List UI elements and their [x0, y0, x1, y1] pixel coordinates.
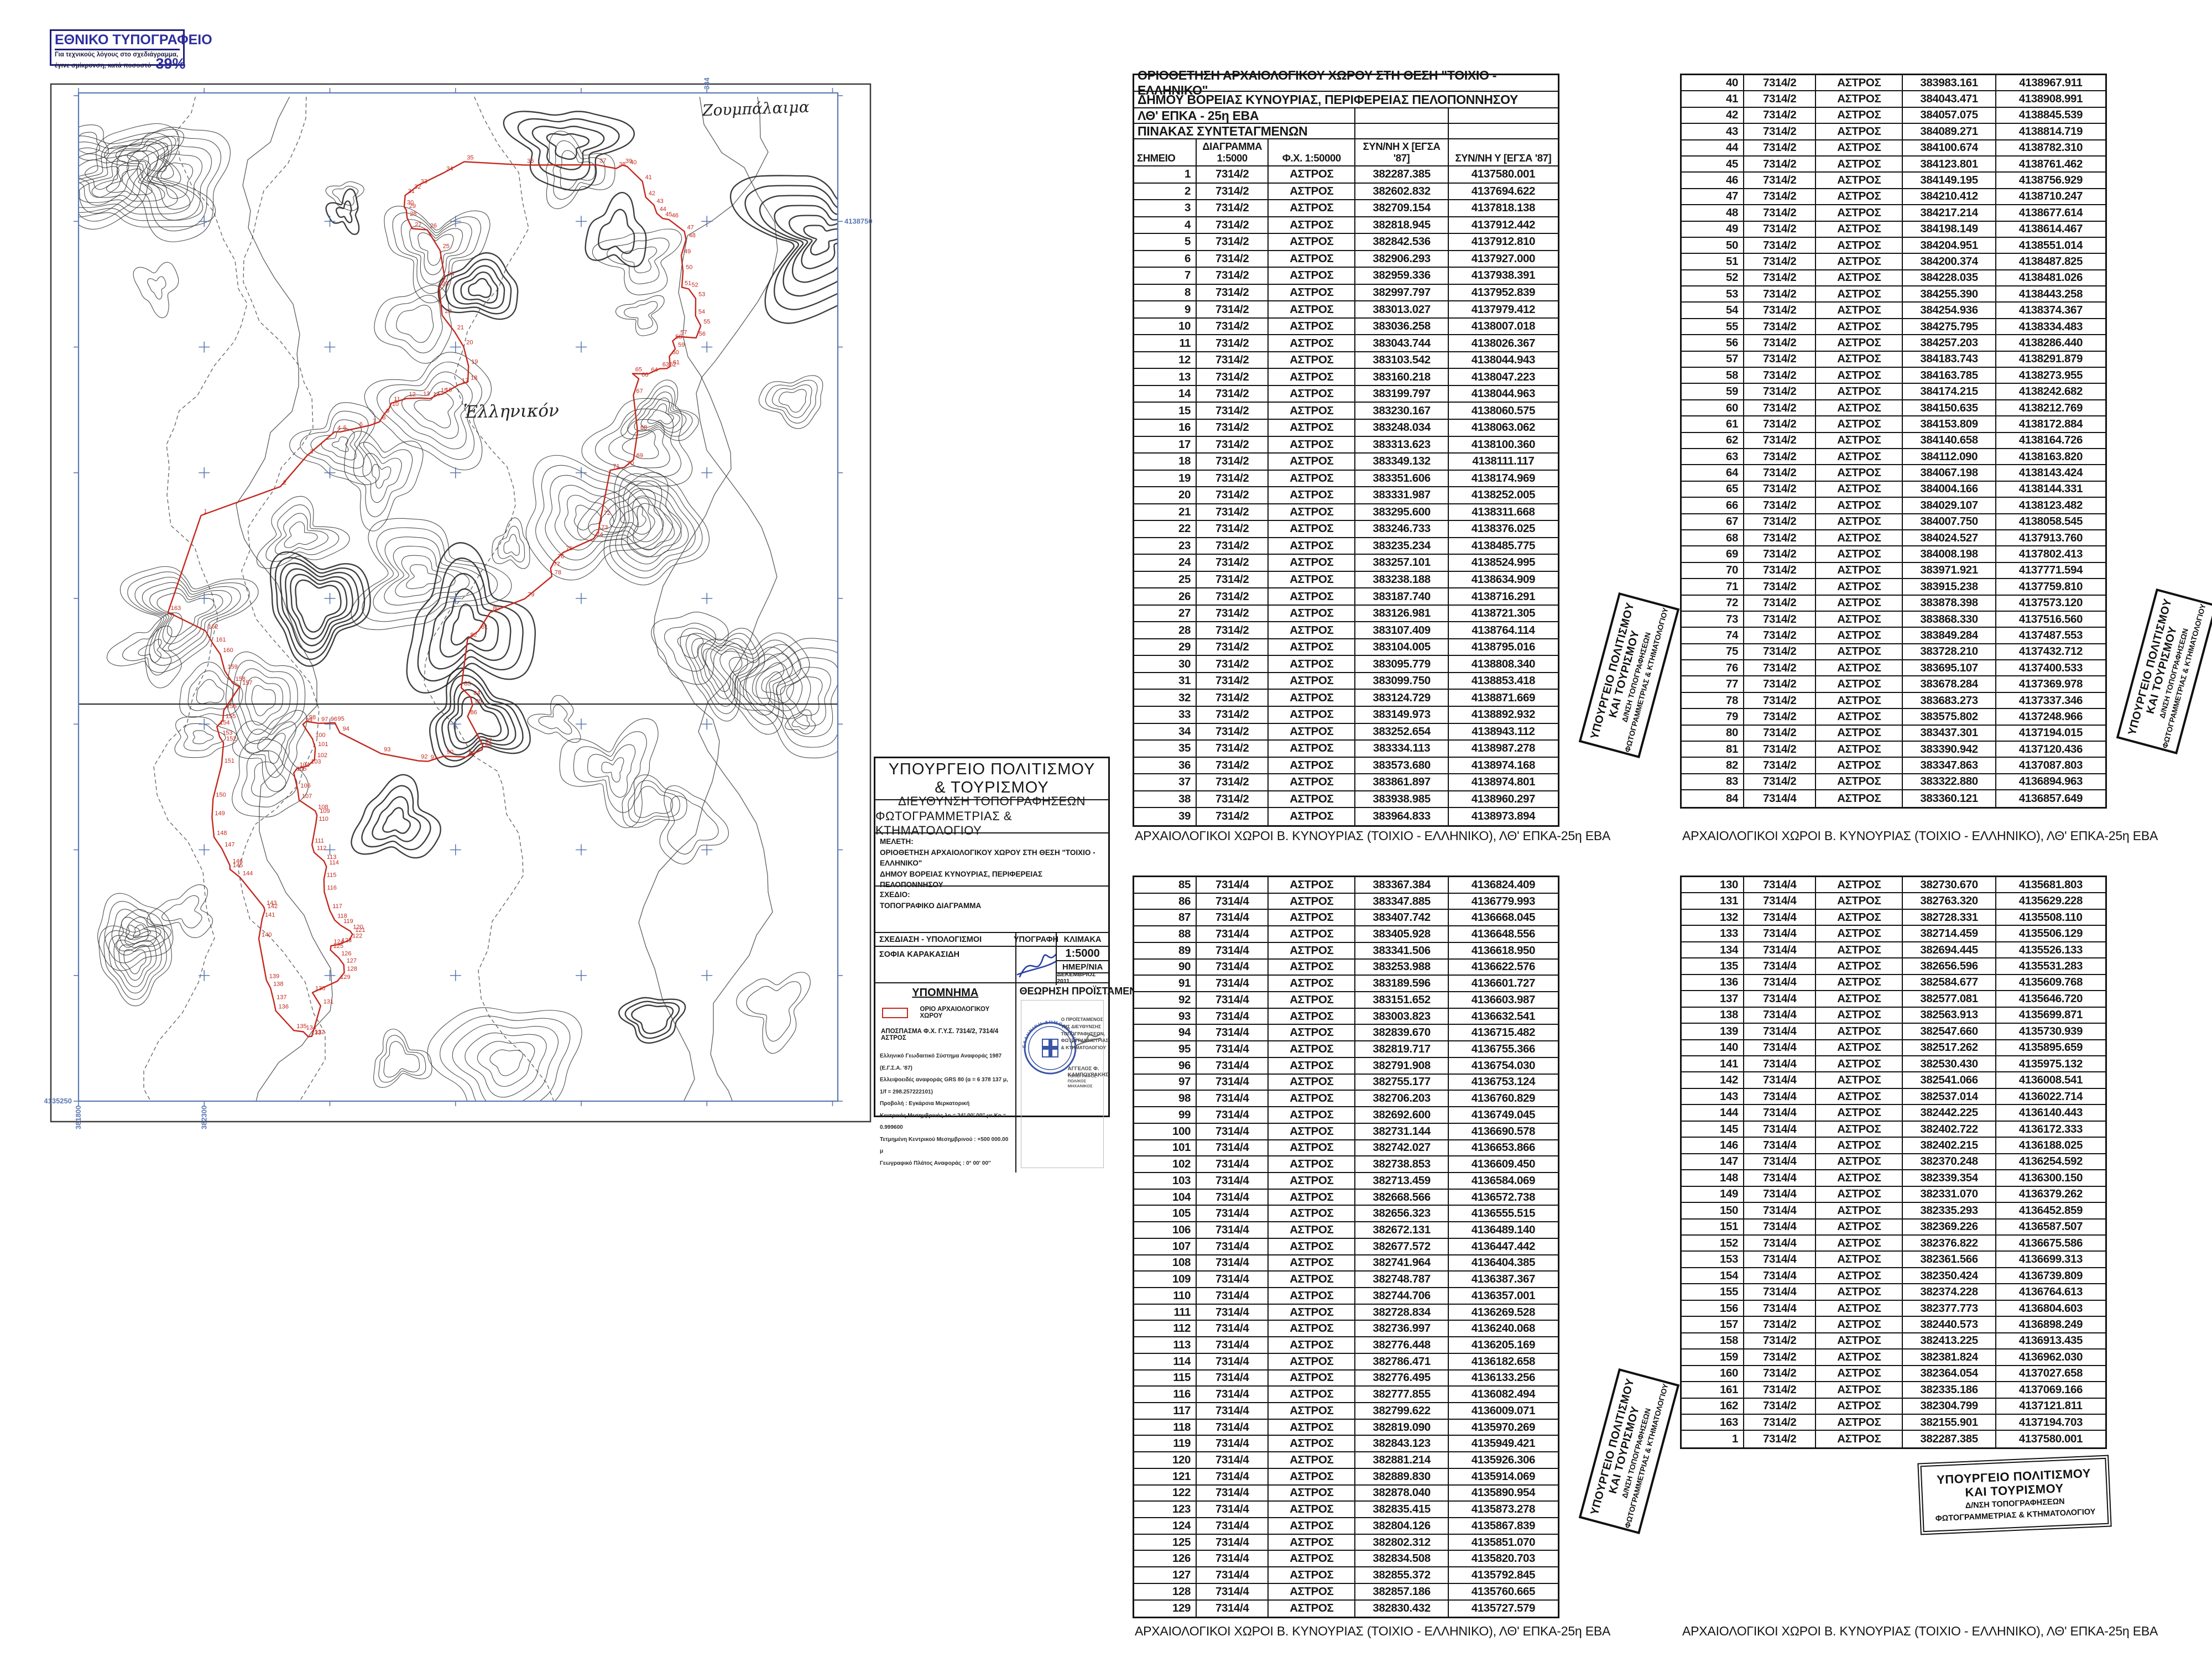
table-row: 1157314/4ΑΣΤΡΟΣ382776.4954136133.256 [1134, 1371, 1558, 1387]
table-cell: 4138814.719 [1995, 124, 2105, 139]
table-cell: 7314/4 [1196, 1091, 1267, 1106]
boundary-point-label: 110 [319, 816, 328, 822]
table-cell: 64 [1682, 465, 1743, 480]
table-cell: 4138761.462 [1995, 157, 2105, 171]
boundary-point-label: 25 [443, 243, 450, 250]
table-row: 987314/4ΑΣΤΡΟΣ382706.2034136760.829 [1134, 1091, 1558, 1107]
table-cell: 383849.284 [1902, 628, 1995, 643]
table-cell: ΑΣΤΡΟΣ [1267, 572, 1354, 588]
table-row: 1347314/4ΑΣΤΡΟΣ382694.4454135526.133 [1682, 942, 2105, 958]
table-cell: 7314/4 [1196, 1502, 1267, 1517]
table-row: 647314/2ΑΣΤΡΟΣ384067.1984138143.424 [1682, 465, 2105, 481]
table-cell: 4138892.932 [1448, 707, 1558, 723]
table-cell: 4136622.576 [1448, 960, 1558, 975]
study-line1: ΟΡΙΟΘΕΤΗΣΗ ΑΡΧΑΙΟΛΟΓΙΚΟΥ ΧΩΡΟΥ ΣΤΗ ΘΕΣΗ … [880, 847, 1104, 869]
table-cell: 7314/4 [1743, 1203, 1815, 1218]
table-cell: 383971.921 [1902, 563, 1995, 578]
boundary-point-label: 99 [306, 717, 312, 724]
table-cell: 26 [1134, 588, 1196, 605]
table-row: 1497314/4ΑΣΤΡΟΣ382331.0704136379.262 [1682, 1187, 2105, 1203]
coords-table-body-1: 17314/2ΑΣΤΡΟΣ382287.3854137580.00127314/… [1134, 166, 1558, 825]
table-cell: ΑΣΤΡΟΣ [1815, 335, 1902, 350]
table-row: 1037314/4ΑΣΤΡΟΣ382713.4594136584.069 [1134, 1173, 1558, 1190]
table-cell: 384004.166 [1902, 482, 1995, 497]
table-cell: 383230.167 [1354, 403, 1448, 419]
table-cell: 382748.787 [1354, 1272, 1448, 1287]
table-cell: ΑΣΤΡΟΣ [1815, 1138, 1902, 1153]
table-title-2: ΔΗΜΟΥ ΒΟΡΕΙΑΣ ΚΥΝΟΥΡΙΑΣ, ΠΕΡΙΦΕΡΕΙΑΣ ΠΕΛ… [1134, 92, 1558, 108]
table-row: 377314/2ΑΣΤΡΟΣ383861.8974138974.801 [1134, 774, 1558, 791]
table-cell: 85 [1134, 877, 1196, 893]
boundary-point-label: 162 [208, 623, 218, 630]
table-cell: 7314/2 [1743, 758, 1815, 773]
table-cell: 382709.154 [1354, 200, 1448, 216]
boundary-point-label: 9 [386, 408, 389, 415]
table-cell: 4138273.955 [1995, 368, 2105, 383]
table-row: 1167314/4ΑΣΤΡΟΣ382777.8554136082.494 [1134, 1387, 1558, 1403]
table-cell: ΑΣΤΡΟΣ [1267, 301, 1354, 317]
table-cell: 7314/2 [1743, 465, 1815, 480]
table-cell: ΑΣΤΡΟΣ [1815, 644, 1902, 659]
table-cell: 7314/2 [1196, 184, 1267, 200]
table-cell: 7314/4 [1196, 1058, 1267, 1074]
table-cell: ΑΣΤΡΟΣ [1267, 1567, 1354, 1583]
table-cell: 4138634.909 [1448, 572, 1558, 588]
table-cell: ΑΣΤΡΟΣ [1815, 1220, 1902, 1234]
table-row: 1027314/4ΑΣΤΡΟΣ382738.8534136609.450 [1134, 1156, 1558, 1173]
table-cell: 7314/2 [1743, 449, 1815, 464]
title-block-directorate-line1: ΔΙΕΥΘΥΝΣΗ ΤΟΠΟΓΡΑΦΗΣΕΩΝ [898, 794, 1086, 809]
table-cell: 382402.215 [1902, 1138, 1995, 1153]
boundary-point-label: 70 [627, 460, 634, 467]
table-cell: 7314/2 [1743, 433, 1815, 448]
boundary-point-label: 96 [331, 716, 337, 722]
empty-cell [1448, 108, 1558, 123]
table-cell: ΑΣΤΡΟΣ [1815, 530, 1902, 545]
geodetic-note-line: Γεωγραφικό Πλάτος Αναφοράς : 0° 00′ 00″ [880, 1158, 1011, 1170]
table-cell: 7314/2 [1196, 774, 1267, 790]
table-cell: 4136555.515 [1448, 1206, 1558, 1221]
table-cell: ΑΣΤΡΟΣ [1267, 285, 1354, 301]
boundary-point-label: 111 [315, 838, 324, 845]
boundary-point-label: 140 [262, 932, 272, 939]
table-cell: 4136572.738 [1448, 1190, 1558, 1205]
table-cell: 4136668.045 [1448, 910, 1558, 925]
table-row: 287314/2ΑΣΤΡΟΣ383107.4094138764.114 [1134, 622, 1558, 639]
table-cell: 93 [1134, 1009, 1196, 1024]
table-cell: 382818.945 [1354, 217, 1448, 233]
table-cell: ΑΣΤΡΟΣ [1267, 894, 1354, 909]
table-cell: 7314/4 [1196, 1584, 1267, 1599]
table-row: 687314/2ΑΣΤΡΟΣ384024.5274137913.760 [1682, 530, 2105, 546]
table-cell: 4135914.069 [1448, 1469, 1558, 1484]
table-cell: 4136404.385 [1448, 1255, 1558, 1271]
boundary-point-label: 139 [269, 973, 279, 979]
table-cell: 110 [1134, 1288, 1196, 1304]
table-cell: 7314/4 [1196, 1255, 1267, 1271]
table-row: 417314/2ΑΣΤΡΟΣ384043.4714138908.991 [1682, 91, 2105, 107]
table-cell: 384153.809 [1902, 416, 1995, 431]
table-row: 357314/2ΑΣΤΡΟΣ383334.1134138987.278 [1134, 741, 1558, 758]
table-cell: ΑΣΤΡΟΣ [1815, 1333, 1902, 1348]
boundary-point-label: 34 [446, 166, 453, 173]
boundary-point-label: 1 [204, 508, 207, 515]
table-cell: 384255.390 [1902, 286, 1995, 301]
table-cell: 57 [1682, 352, 1743, 367]
table-cell: 4138908.991 [1995, 91, 2105, 106]
table-row: 1567314/4ΑΣΤΡΟΣ382377.7734136804.603 [1682, 1301, 2105, 1317]
boundary-point-label: 30 [407, 200, 414, 206]
legend-title: ΥΠΟΜΝΗΜΑ [880, 987, 1011, 999]
table-cell: 7314/4 [1743, 1220, 1815, 1234]
table-cell: 382413.225 [1902, 1333, 1995, 1348]
table-cell: 4138143.424 [1995, 465, 2105, 480]
table-cell: 7314/4 [1196, 1354, 1267, 1369]
table-cell: 4138334.483 [1995, 319, 2105, 334]
boundary-point-label: 41 [645, 174, 652, 181]
table-cell: 7314/4 [1743, 910, 1815, 925]
table-cell: 4138007.018 [1448, 319, 1558, 335]
table-row: 87314/2ΑΣΤΡΟΣ382997.7974137952.839 [1134, 285, 1558, 302]
table-cell: 7314/4 [1196, 1173, 1267, 1189]
boundary-point-label: 100 [315, 732, 325, 738]
table-cell: 68 [1682, 530, 1743, 545]
boundary-point-label: 68 [640, 424, 647, 431]
table-cell: 7314/2 [1196, 639, 1267, 655]
table-cell: 4138172.884 [1995, 416, 2105, 431]
table-cell: 4138943.112 [1448, 724, 1558, 740]
table-cell: 7314/2 [1196, 808, 1267, 825]
table-row: 917314/4ΑΣΤΡΟΣ383189.5964136601.727 [1134, 976, 1558, 992]
table-cell: 382730.670 [1902, 877, 1995, 892]
table-row: 1477314/4ΑΣΤΡΟΣ382370.2484136254.592 [1682, 1154, 2105, 1170]
boundary-point-label: 97 [321, 716, 328, 723]
table-cell: ΑΣΤΡΟΣ [1267, 1222, 1354, 1238]
table-cell: 384112.090 [1902, 449, 1995, 464]
table-cell: 62 [1682, 433, 1743, 448]
table-cell: 49 [1682, 222, 1743, 237]
table-row: 397314/2ΑΣΤΡΟΣ383964.8334138973.894 [1134, 808, 1558, 825]
boundary-point-label: 136 [279, 1004, 289, 1010]
table-cell: ΑΣΤΡΟΣ [1267, 319, 1354, 335]
table-cell: 382547.660 [1902, 1024, 1995, 1039]
table-cell: 382878.040 [1354, 1486, 1448, 1501]
table-cell: 4138677.614 [1995, 205, 2105, 220]
boundary-point-label: 52 [692, 282, 698, 289]
boundary-point-label: 37 [599, 158, 606, 164]
table-row: 1327314/4ΑΣΤΡΟΣ382728.3314135508.110 [1682, 910, 2105, 926]
grid-coordinate-label: 382300 [200, 1106, 208, 1129]
table-cell: 382376.822 [1902, 1236, 1995, 1250]
table-cell: ΑΣΤΡΟΣ [1815, 1122, 1902, 1137]
table-cell: ΑΣΤΡΟΣ [1815, 1236, 1902, 1250]
boundary-point-label: 55 [703, 319, 710, 325]
table-cell: 7314/4 [1743, 1170, 1815, 1185]
table-cell: 4136357.001 [1448, 1288, 1558, 1304]
table-cell: 4138063.062 [1448, 420, 1558, 436]
table-cell: ΑΣΤΡΟΣ [1815, 270, 1902, 285]
table-cell: 4138721.305 [1448, 606, 1558, 622]
table-cell: ΑΣΤΡΟΣ [1815, 498, 1902, 513]
table-cell: 382563.913 [1902, 1008, 1995, 1023]
boundary-point-label: 72 [604, 510, 611, 517]
table-cell: ΑΣΤΡΟΣ [1267, 926, 1354, 942]
table-row: 507314/2ΑΣΤΡΟΣ384204.9514138551.014 [1682, 238, 2105, 254]
table-row: 827314/2ΑΣΤΡΟΣ383347.8634137087.803 [1682, 758, 2105, 774]
table-cell: 27 [1134, 606, 1196, 622]
table-cell: ΑΣΤΡΟΣ [1267, 1173, 1354, 1189]
table-cell: 4137400.533 [1995, 660, 2105, 675]
table-cell: 382728.834 [1354, 1305, 1448, 1320]
boundary-point-label: 54 [698, 309, 705, 315]
table-row: 637314/2ΑΣΤΡΟΣ384112.0904138163.820 [1682, 449, 2105, 465]
table-cell: 383151.652 [1354, 992, 1448, 1008]
boundary-point-label: 14 [433, 392, 440, 398]
boundary-point-label: 82 [471, 632, 477, 639]
table-cell: 7314/4 [1743, 942, 1815, 957]
table-cell: 7314/4 [1196, 1009, 1267, 1024]
empty-cell [1354, 108, 1448, 123]
table-row: 727314/2ΑΣΤΡΟΣ383878.3984137573.120 [1682, 596, 2105, 612]
table-row: 817314/2ΑΣΤΡΟΣ383390.9424137120.436 [1682, 742, 2105, 758]
table-cell: 383246.733 [1354, 521, 1448, 537]
column-scale-label: ΚΛΙΜΑΚΑ [1056, 933, 1108, 946]
table-cell: 383126.981 [1354, 606, 1448, 622]
boundary-point-label: 150 [216, 791, 226, 798]
table-cell: 383347.863 [1902, 758, 1995, 773]
table-cell: 382830.432 [1354, 1601, 1448, 1617]
table-cell: ΑΣΤΡΟΣ [1815, 758, 1902, 773]
table-cell: 134 [1682, 942, 1743, 957]
table-cell: 4136699.313 [1995, 1252, 2105, 1267]
table-cell: ΑΣΤΡΟΣ [1267, 1272, 1354, 1287]
geodetic-note-line: Ελλειψοειδές αναφοράς GRS 80 (α = 6 378 … [880, 1074, 1011, 1098]
table-cell: 150 [1682, 1203, 1743, 1218]
table-cell: ΑΣΤΡΟΣ [1267, 352, 1354, 368]
table-row: 837314/2ΑΣΤΡΟΣ383322.8804136894.963 [1682, 774, 2105, 790]
table-cell: 4137912.442 [1448, 217, 1558, 233]
table-row: 1247314/4ΑΣΤΡΟΣ382804.1264135867.839 [1134, 1518, 1558, 1535]
coords-table-4: 1307314/4ΑΣΤΡΟΣ382730.6704135681.8031317… [1680, 876, 2107, 1449]
table-row: 1407314/4ΑΣΤΡΟΣ382517.2624135895.659 [1682, 1040, 2105, 1056]
table-cell: 382834.508 [1354, 1551, 1448, 1566]
table-cell: 59 [1682, 384, 1743, 399]
table-cell: 70 [1682, 563, 1743, 578]
table-row: 667314/2ΑΣΤΡΟΣ384029.1074138123.482 [1682, 498, 2105, 514]
table-cell: 382374.228 [1902, 1284, 1995, 1299]
table-cell: 7314/2 [1196, 234, 1267, 250]
table-cell: 158 [1682, 1333, 1743, 1348]
table-cell: 382440.573 [1902, 1317, 1995, 1332]
table-cell: 383099.750 [1354, 673, 1448, 689]
table-cell: 7314/2 [1743, 660, 1815, 675]
table-row: 757314/2ΑΣΤΡΟΣ383728.2104137432.712 [1682, 644, 2105, 660]
table-cell: 4137027.658 [1995, 1366, 2105, 1381]
table-row: 627314/2ΑΣΤΡΟΣ384140.6584138164.726 [1682, 433, 2105, 449]
table-cell: 7314/2 [1743, 709, 1815, 724]
table-cell: 65 [1682, 482, 1743, 497]
table-cell: 384254.936 [1902, 303, 1995, 317]
table-cell: 4135629.228 [1995, 893, 2105, 908]
table-cell: 4138286.440 [1995, 335, 2105, 350]
boundary-point-label: 154 [220, 720, 229, 726]
table-cell: 4137927.000 [1448, 251, 1558, 267]
table-row: 807314/2ΑΣΤΡΟΣ383437.3014137194.015 [1682, 726, 2105, 742]
table-cell: 383728.210 [1902, 644, 1995, 659]
table-row: 1187314/4ΑΣΤΡΟΣ382819.0904135970.269 [1134, 1420, 1558, 1436]
table-cell: 383149.973 [1354, 707, 1448, 723]
table-cell: 7314/2 [1196, 707, 1267, 723]
table-row: 47314/2ΑΣΤΡΟΣ382818.9454137912.442 [1134, 217, 1558, 235]
table-cell: 7314/4 [1743, 1301, 1815, 1316]
table-cell: 154 [1682, 1268, 1743, 1283]
table-row: 477314/2ΑΣΤΡΟΣ384210.4124138710.247 [1682, 189, 2105, 205]
table-cell: ΑΣΤΡΟΣ [1267, 1124, 1354, 1139]
table-cell: 383043.744 [1354, 335, 1448, 351]
table-cell: 36 [1134, 758, 1196, 774]
geodetic-notes: Ελληνικό Γεωδαιτικό Σύστημα Αναφοράς 198… [880, 1050, 1011, 1169]
table-row: 537314/2ΑΣΤΡΟΣ384255.3904138443.258 [1682, 286, 2105, 303]
table-cell: 4137120.436 [1995, 742, 2105, 757]
boundary-point-label: 56 [699, 331, 706, 337]
table-cell: 7314/4 [1196, 1486, 1267, 1501]
table-cell: 7314/2 [1743, 612, 1815, 627]
table-cell: 11 [1134, 335, 1196, 351]
table-cell: ΑΣΤΡΟΣ [1815, 303, 1902, 317]
table-row: 1067314/4ΑΣΤΡΟΣ382672.1314136489.140 [1134, 1222, 1558, 1239]
table-cell: ΑΣΤΡΟΣ [1815, 1268, 1902, 1283]
table-cell: 4138716.291 [1448, 588, 1558, 605]
table-cell: 7314/2 [1196, 319, 1267, 335]
table-cell: 4135727.579 [1448, 1601, 1558, 1617]
coords-table-body-2: 407314/2ΑΣΤΡΟΣ383983.1614138967.91141731… [1682, 75, 2105, 807]
boundary-point-label: 137 [276, 994, 286, 1001]
table-cell: 4135895.659 [1995, 1040, 2105, 1055]
table-cell: 7314/4 [1196, 1272, 1267, 1287]
table-cell: ΑΣΤΡΟΣ [1815, 108, 1902, 123]
table-cell: 382331.070 [1902, 1187, 1995, 1202]
table-cell: ΑΣΤΡΟΣ [1815, 1040, 1902, 1055]
table-cell: 7314/2 [1743, 563, 1815, 578]
table-cell: 4138853.418 [1448, 673, 1558, 689]
table-cell: 382304.799 [1902, 1399, 1995, 1414]
table-title-1: ΟΡΙΟΘΕΤΗΣΗ ΑΡΧΑΙΟΛΟΓΙΚΟΥ ΧΩΡΟΥ ΣΤΗ ΘΕΣΗ … [1134, 75, 1558, 92]
boundary-point-label: 22 [445, 308, 452, 315]
boundary-point-label: 163 [171, 605, 181, 612]
table-row: 1507314/4ΑΣΤΡΟΣ382335.2934136452.859 [1682, 1203, 2105, 1219]
table-row: 17314/2ΑΣΤΡΟΣ382287.3854137580.001 [1682, 1431, 2105, 1447]
table-cell: 31 [1134, 673, 1196, 689]
boundary-point-label: 149 [215, 810, 225, 817]
table-cell: 382287.385 [1354, 166, 1448, 183]
document-page: ΕΘΝΙΚΟ ΤΥΠΟΓΡΑΦΕΙΟ Για τεχνικούς λόγους … [0, 0, 2212, 1657]
table-cell: 4136452.859 [1995, 1203, 2105, 1218]
table-cell: ΑΣΤΡΟΣ [1815, 991, 1902, 1006]
table-cell: 4135975.132 [1995, 1056, 2105, 1071]
table-cell: 4137818.138 [1448, 200, 1558, 216]
table-cell: 4136764.613 [1995, 1284, 2105, 1299]
table-cell: 7314/4 [1196, 1190, 1267, 1205]
table-cell: 4136760.829 [1448, 1091, 1558, 1106]
table-cell: 4136857.649 [1995, 790, 2105, 806]
table-cell: 7314/2 [1196, 791, 1267, 807]
table-cell: 383107.409 [1354, 622, 1448, 638]
table-cell: 115 [1134, 1371, 1196, 1386]
table-cell: ΑΣΤΡΟΣ [1267, 976, 1354, 991]
table-cell: 4137087.803 [1995, 758, 2105, 773]
table-cell: 141 [1682, 1056, 1743, 1071]
table-cell: 7314/2 [1196, 285, 1267, 301]
boundary-point-label: 51 [685, 280, 691, 286]
table-cell: 383437.301 [1902, 726, 1995, 741]
table-cell: 382713.459 [1354, 1173, 1448, 1189]
boundary-point-label: 8 [382, 415, 385, 421]
table-row: 1207314/4ΑΣΤΡΟΣ382881.2144135926.306 [1134, 1452, 1558, 1469]
table-cell: 383573.680 [1354, 758, 1448, 774]
table-row: 1287314/4ΑΣΤΡΟΣ382857.1864135760.665 [1134, 1584, 1558, 1601]
table-cell: ΑΣΤΡΟΣ [1267, 808, 1354, 825]
boundary-point-label: 130 [315, 986, 325, 992]
table-cell: 382361.566 [1902, 1252, 1995, 1267]
table-cell: 7314/2 [1196, 758, 1267, 774]
table-cell: 18 [1134, 454, 1196, 470]
table-cell: 60 [1682, 400, 1743, 415]
table-cell: 53 [1682, 286, 1743, 301]
table-cell: 35 [1134, 741, 1196, 757]
table-cell: 384007.750 [1902, 514, 1995, 529]
table-cell: 7314/4 [1196, 1107, 1267, 1123]
table-cell: 383003.823 [1354, 1009, 1448, 1024]
table-cell: 17 [1134, 437, 1196, 453]
table-row: 1367314/4ΑΣΤΡΟΣ382584.6774135609.768 [1682, 975, 2105, 991]
table-cell: ΑΣΤΡΟΣ [1815, 660, 1902, 675]
table-row: 1397314/4ΑΣΤΡΟΣ382547.6604135730.939 [1682, 1024, 2105, 1040]
table-cell: 78 [1682, 693, 1743, 708]
table-cell: ΑΣΤΡΟΣ [1815, 1154, 1902, 1169]
table-cell: 7314/2 [1196, 588, 1267, 605]
table-cell: ΑΣΤΡΟΣ [1267, 251, 1354, 267]
table-row: 1337314/4ΑΣΤΡΟΣ382714.4594135506.129 [1682, 926, 2105, 942]
table-cell: 30 [1134, 656, 1196, 672]
table-cell: ΑΣΤΡΟΣ [1267, 335, 1354, 351]
table-cell: 7314/4 [1196, 1075, 1267, 1090]
table-cell: 7314/2 [1743, 91, 1815, 106]
boundary-point-label: 143 [267, 900, 276, 906]
table-cell: ΑΣΤΡΟΣ [1267, 724, 1354, 740]
table-cell: 135 [1682, 958, 1743, 973]
table-title-4: ΠΙΝΑΚΑΣ ΣΥΝΤΕΤΑΓΜΕΝΩΝ [1134, 124, 1354, 139]
table-cell: ΑΣΤΡΟΣ [1267, 1190, 1354, 1205]
grid-coordinate-label: 384300 [702, 77, 711, 90]
table-row: 547314/2ΑΣΤΡΟΣ384254.9364138374.367 [1682, 303, 2105, 319]
boundary-point-label: 38 [619, 161, 625, 168]
table-row: 177314/2ΑΣΤΡΟΣ383313.6234138100.360 [1134, 437, 1558, 454]
table-row: 1017314/4ΑΣΤΡΟΣ382742.0274136653.866 [1134, 1140, 1558, 1157]
table-cell: 146 [1682, 1138, 1743, 1153]
table-cell: 4136205.169 [1448, 1337, 1558, 1353]
table-cell: ΑΣΤΡΟΣ [1267, 622, 1354, 638]
table-cell: 117 [1134, 1403, 1196, 1419]
table-row: 937314/4ΑΣΤΡΟΣ383003.8234136632.541 [1134, 1009, 1558, 1025]
table-cell: 384123.801 [1902, 157, 1995, 171]
table-cell: 382656.596 [1902, 958, 1995, 973]
table-cell: 384089.271 [1902, 124, 1995, 139]
table-cell: 103 [1134, 1173, 1196, 1189]
boundary-point-label: 32 [414, 184, 421, 190]
table-cell: 40 [1682, 75, 1743, 90]
boundary-point-label: 141 [265, 911, 275, 918]
table-cell: 4137248.966 [1995, 709, 2105, 724]
